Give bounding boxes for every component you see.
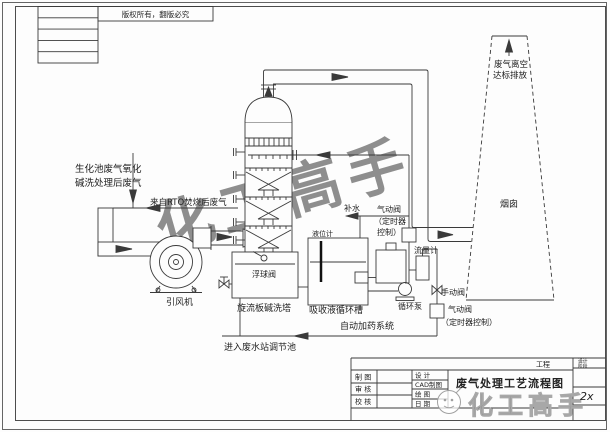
mid-row-3: 绘 图 (415, 390, 430, 399)
handwritten-note: 2x (580, 390, 594, 403)
drawing-title: 废气处理工艺流程图 (456, 376, 564, 390)
makeup-water-label: 补水 (344, 203, 360, 213)
circulation-pump-label: 循环泵 (398, 301, 422, 311)
pneumatic-valve-2-label-a: 气动阀 (448, 304, 472, 314)
circulation-pump-symbol (399, 283, 412, 296)
pneumatic-valve-2-symbol (430, 304, 444, 318)
flow-meter-symbol (416, 256, 429, 280)
title-block: 工程 设计 阶段 制 图 审 核 校 核 设 计 CAD制图 绘 图 日 期 废… (355, 358, 594, 421)
inlet-gas-label-2: 碱洗处理后废气 (75, 177, 142, 189)
sig-row-3: 校 核 (355, 397, 371, 406)
pneumatic-valve-1-label-c: 控制） (377, 227, 401, 237)
dosing-system-label: 自动加药系统 (340, 320, 394, 332)
pneumatic-valve-2-label-b: （定时器控制） (441, 317, 497, 327)
sig-row-1: 制 图 (355, 373, 371, 382)
manual-valve-label: 手动阀 (441, 287, 465, 297)
watermark-logo-icon (438, 388, 462, 414)
level-gauge-label: 液位计 (312, 229, 333, 238)
fan-label: 引风机 (166, 296, 193, 308)
inlet-gas-label-1: 生化池废气氧化 (75, 163, 142, 175)
process-flow-diagram: 化工高手 (0, 0, 610, 432)
circulation-tank-label: 吸收液循环槽 (309, 304, 363, 316)
circulation-tank (308, 238, 368, 305)
tower-label: 旋流板碱洗塔 (237, 302, 291, 314)
pneumatic-valve-1-label-a: 气动阀 (377, 204, 401, 214)
rto-gas-label: 来自RTO焚烧后废气 (150, 197, 227, 208)
mid-row-4: 日 期 (415, 400, 431, 408)
pneumatic-valve-1-label-b: （定时器 (374, 216, 406, 226)
stack-exhaust-label-2: 达标排放 (493, 70, 528, 81)
stack-exhaust-label-1: 废气离空 (494, 59, 528, 70)
sig-row-2: 审 核 (355, 385, 371, 394)
copyright-text: 版权所有，翻版必究 (122, 9, 190, 19)
sump-tank (219, 252, 308, 337)
pneumatic-valve-1-symbol (402, 228, 416, 242)
project-label: 工程 (536, 360, 550, 369)
mid-row-2: CAD制图 (415, 380, 442, 389)
stack-label: 烟囱 (500, 198, 518, 210)
dosing-pump-symbol (355, 272, 368, 283)
float-valve-label: 浮球阀 (252, 269, 276, 279)
stage-line-2: 阶段 (578, 362, 588, 369)
drain-label: 进入废水站调节池 (224, 341, 296, 353)
cad-drawing-sheet: 化工高手 (0, 0, 610, 432)
flow-meter-label: 流量计 (414, 245, 438, 255)
mid-row-1: 设 计 (415, 371, 431, 380)
watermark-brand-text: 化工高手 (468, 391, 588, 420)
